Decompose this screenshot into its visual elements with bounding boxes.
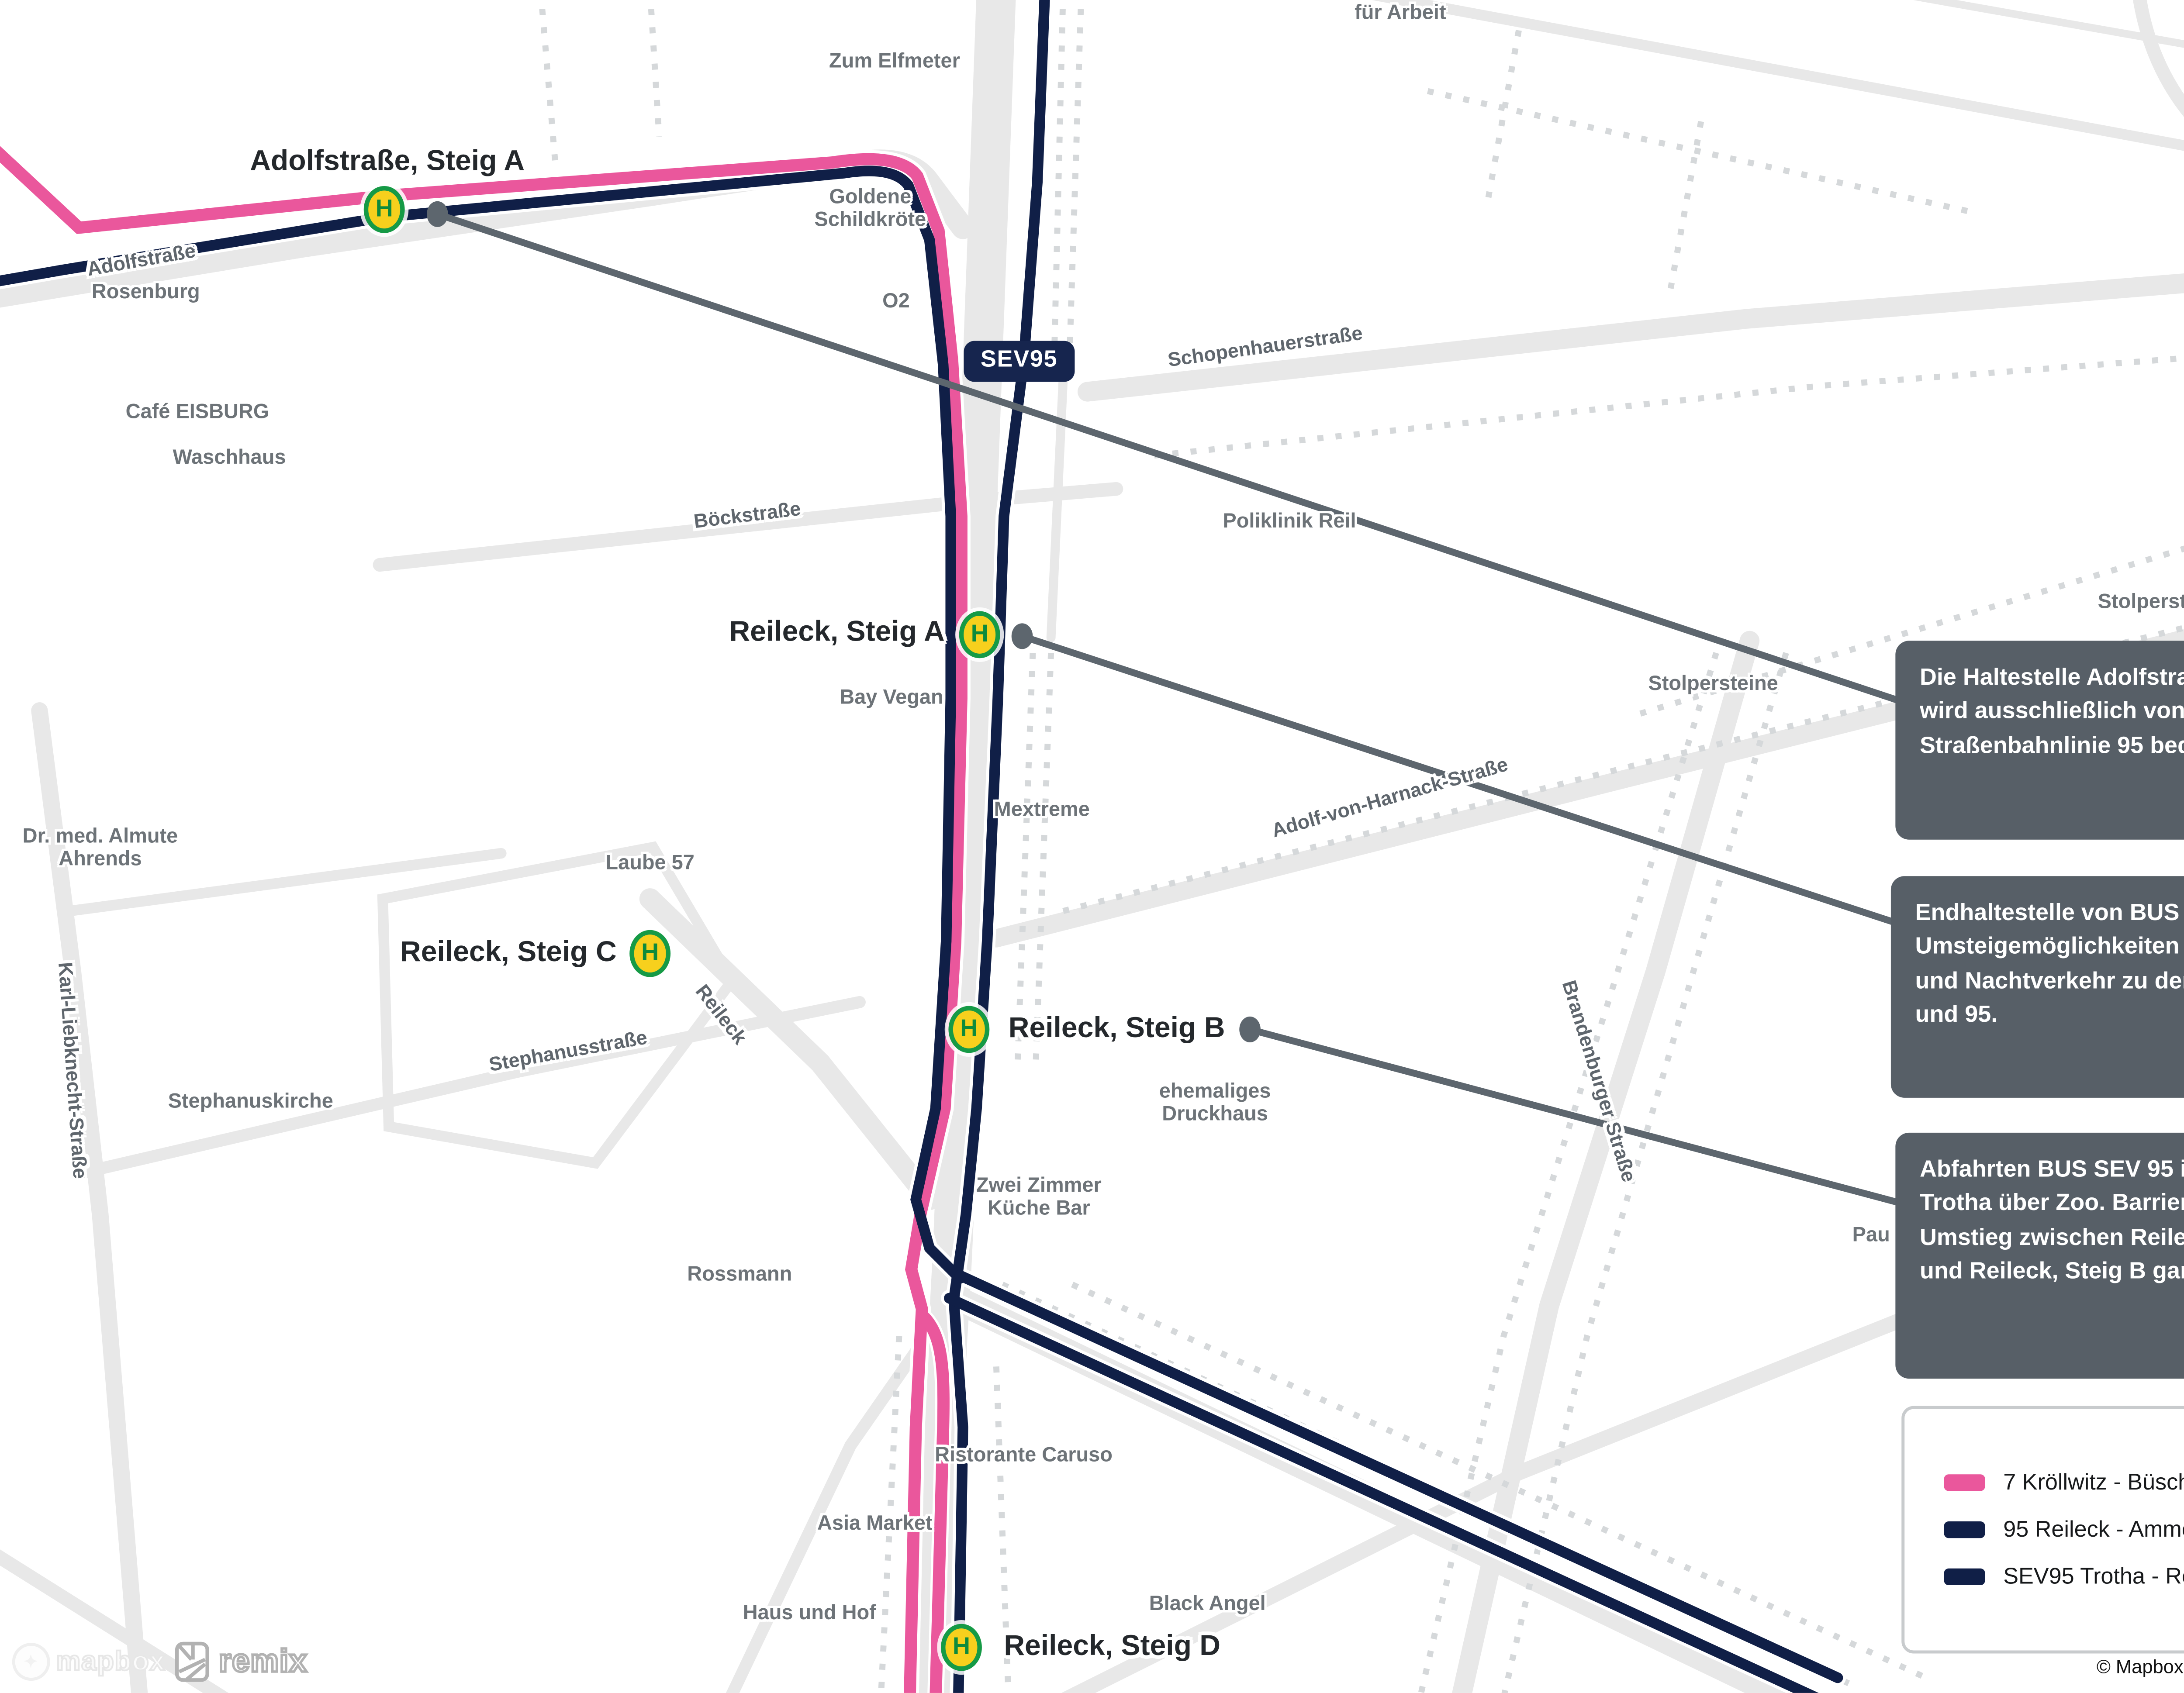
poi-label-stolpersteine-1: Stolpersteine	[2098, 590, 2184, 613]
stop-label-reileck-steig-d: Reileck, Steig D	[1004, 1631, 1220, 1664]
remix-logo-text: remix	[219, 1644, 308, 1680]
sev95-route-badge: SEV95	[964, 341, 1075, 382]
line-7-swatch	[1944, 1474, 1985, 1491]
base-roads	[0, 0, 2184, 1693]
map-road-network	[0, 0, 2184, 1693]
legend-label-line-95: 95 Reileck - Ammendorf	[2003, 1517, 2184, 1543]
poi-label-mextreme: Mextreme	[994, 798, 1090, 821]
poi-label-ristorante-caruso: Ristorante Caruso	[935, 1443, 1113, 1466]
poi-label-o2: O2	[882, 289, 910, 312]
remix-logo: remix	[175, 1641, 308, 1683]
poi-label-pau-clipped: Pau	[1852, 1223, 1890, 1246]
legend: 7 Kröllwitz - Büschdorf 95 Reileck - Amm…	[1901, 1406, 2184, 1654]
poi-label-cafe-eisburg: Café EISBURG	[126, 400, 270, 423]
poi-label-stephanuskirche: Stephanuskirche	[168, 1090, 333, 1113]
poi-label-rossmann: Rossmann	[687, 1262, 792, 1286]
mapbox-logo-icon: ✦	[12, 1643, 50, 1681]
poi-label-black-angel: Black Angel	[1149, 1592, 1266, 1615]
annotation-box-endhaltestelle: Endhaltestelle von BUS SEV 95. Umsteigem…	[1891, 876, 2184, 1098]
poi-label-bay-vegan: Bay Vegan	[840, 686, 943, 709]
poi-label-fuer-arbeit: für Arbeit	[1355, 1, 1446, 24]
poi-label-goldene-schildkroete: Goldene Schildkröte	[815, 185, 926, 231]
poi-label-stolpersteine-2: Stolpersteine	[1648, 672, 1778, 695]
stop-marker-reileck-b-h-icon: H	[948, 1006, 989, 1053]
annotation-box-abfahrten: Abfahrten BUS SEV 95 in Richtung Trotha …	[1895, 1133, 2184, 1379]
legend-item-sev95: SEV95 Trotha - Reileck	[1944, 1564, 2184, 1590]
stop-label-reileck-steig-c: Reileck, Steig C	[400, 937, 617, 970]
poi-label-dr-ahrends: Dr. med. Almute Ahrends	[23, 824, 178, 870]
stop-marker-adolfstrasse-a-h-icon: H	[364, 186, 405, 233]
remix-logo-icon	[175, 1641, 210, 1683]
line-95-swatch	[1944, 1521, 1985, 1538]
stop-marker-reileck-c-h-icon: H	[629, 930, 670, 977]
poi-label-zwei-zimmer: Zwei Zimmer Küche Bar	[976, 1173, 1102, 1219]
poi-label-zum-elfmeter: Zum Elfmeter	[829, 49, 960, 72]
poi-label-asia-market: Asia Market	[817, 1511, 933, 1534]
sev95-swatch	[1944, 1569, 1985, 1585]
poi-label-druckhaus: ehemaliges Druckhaus	[1159, 1079, 1271, 1125]
map-attribution: © Mapbox © OpenStreetMap	[2097, 1656, 2184, 1678]
stop-marker-reileck-d-h-icon: H	[941, 1624, 982, 1671]
stop-marker-reileck-a-h-icon: H	[959, 611, 1000, 659]
mapbox-logo-text: mapbox	[56, 1646, 166, 1678]
poi-label-waschhaus: Waschhaus	[173, 445, 286, 469]
line-7-pink	[0, 146, 961, 1693]
legend-item-line-95: 95 Reileck - Ammendorf	[1944, 1517, 2184, 1543]
poi-label-poliklinik-reil: Poliklinik Reil	[1223, 509, 1356, 532]
legend-label-sev95: SEV95 Trotha - Reileck	[2003, 1564, 2184, 1590]
stop-label-reileck-steig-b: Reileck, Steig B	[1009, 1013, 1225, 1046]
legend-label-line-7: 7 Kröllwitz - Büschdorf	[2003, 1470, 2184, 1496]
poi-label-rosenburg: Rosenburg	[92, 280, 200, 303]
stop-label-reileck-steig-a: Reileck, Steig A	[729, 617, 944, 650]
annotation-box-adolfstrasse: Die Haltestelle Adolfstraße, Steig A wir…	[1895, 641, 2184, 839]
mapbox-logo: ✦ mapbox	[12, 1643, 166, 1681]
map-canvas[interactable]: Adolfstraße Schopenhauerstraße Böckstraß…	[0, 0, 2184, 1693]
legend-item-line-7: 7 Kröllwitz - Büschdorf	[1944, 1470, 2184, 1496]
poi-label-laube-57: Laube 57	[605, 851, 695, 874]
poi-label-haus-und-hof: Haus und Hof	[743, 1601, 876, 1624]
stop-label-adolfstrasse-steig-a: Adolfstraße, Steig A	[250, 146, 525, 179]
